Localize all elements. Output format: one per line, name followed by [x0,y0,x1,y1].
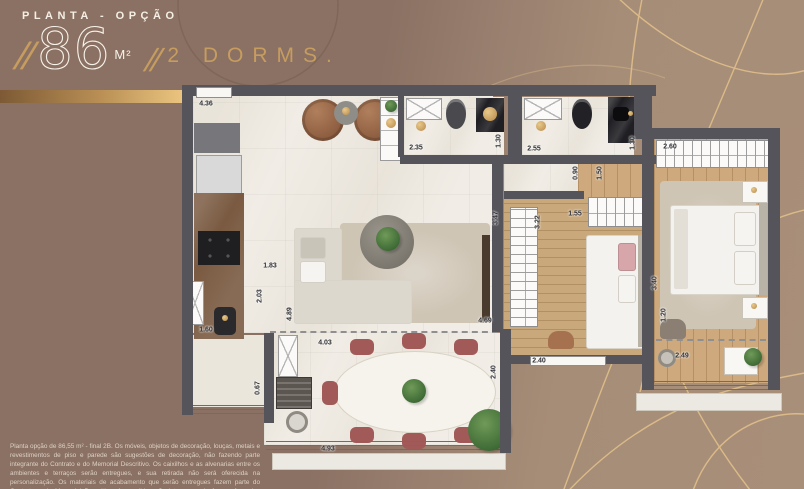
grill-icon [276,377,312,409]
decor-tray [342,107,350,115]
dimension-label: 1.60 [199,327,213,334]
railing [644,381,780,391]
floor-plan: 4.36 2.35 1.30 2.55 1.30 2.60 0.90 1.50 … [182,85,786,477]
dimension-label: 1.30 [630,136,637,150]
lamp-icon [751,303,757,309]
shower-icon [524,98,562,120]
shower-head-icon [536,121,546,131]
service-terrace-floor [193,335,264,407]
sliding-door [656,339,766,341]
pillow [618,275,636,303]
slash-icon: // [143,44,159,76]
toilet-icon [572,99,592,129]
dimension-label: 4.89 [287,307,294,321]
dining-chair [350,339,374,355]
toilet-icon [446,99,466,129]
bed-throw [674,209,688,289]
plant-icon [744,348,762,366]
dimension-label: 2.40 [491,365,498,379]
legal-disclaimer: Planta opção de 86,55 m² - final 2B. Os … [10,443,260,489]
dimension-label: 4.93 [321,446,335,453]
pillow [734,212,756,246]
faucet-icon [628,111,633,116]
dimension-label: 0.67 [255,381,262,395]
dimension-label: 0.90 [573,166,580,180]
sliding-door [270,331,498,333]
decor-bowl [386,118,396,128]
round-sink-icon [286,411,308,433]
pillow [618,243,636,271]
wardrobe [588,197,648,227]
wall [400,155,656,164]
kitchen-cabinet [194,123,240,153]
dining-chair [454,339,478,355]
armchair [548,331,574,349]
sofa-cushion [300,261,326,283]
wall [642,128,654,390]
area-headline: // 86 M² // 2 DORMS. [16,24,341,76]
entry-door [196,87,232,98]
dorms-label: 2 DORMS. [167,44,341,68]
wall [500,329,511,453]
dining-chair [402,333,426,349]
plant-icon [376,227,400,251]
wall [182,85,193,415]
wall [508,96,522,156]
plant-icon [385,100,397,112]
wall [642,128,780,139]
dimension-label: 1.50 [597,166,604,180]
shower-icon [406,98,442,120]
wall [264,333,274,423]
fridge-icon [196,155,242,195]
dimension-label: 4.69 [478,318,492,325]
headboard [759,203,767,295]
dimension-label: 1.55 [568,211,582,218]
dimension-label: 2.49 [675,353,689,360]
dimension-label: 3.22 [535,215,542,229]
cooktop-icon [198,231,240,265]
dimension-label: 2.60 [663,144,677,151]
wall [182,85,656,96]
sofa [294,280,412,324]
wall [768,128,780,390]
gold-accent-bar [0,90,182,103]
dimension-label: 1.20 [661,308,668,322]
dimension-label: 2.40 [532,358,546,365]
dimension-label: 1.83 [263,263,277,270]
shower-head-icon [416,121,426,131]
dimension-label: 4.36 [199,101,213,108]
area-unit: M² [114,47,131,62]
dimension-label: 3.47 [493,211,500,225]
railing [192,405,268,414]
open-door [278,335,298,377]
armchair [660,319,686,339]
plant-icon [402,379,426,403]
railing [266,441,504,451]
dimension-label: 4.03 [318,340,332,347]
slash-icon: // [13,38,33,76]
faucet-icon [222,315,228,321]
area-value: 86 [37,24,110,76]
balcony-ledge [636,393,782,411]
sofa-cushion [300,237,326,259]
wall [398,85,404,157]
kitchen-sink-icon [214,307,236,335]
washbasin-icon [613,107,629,121]
dimension-label: 2.55 [527,146,541,153]
corridor-floor [578,164,644,200]
pillow [734,251,756,285]
round-sink-icon [658,349,676,367]
wall [504,191,584,199]
dimension-label: 1.30 [496,134,503,148]
dimension-label: 2.35 [409,145,423,152]
page-background: PLANTA - OPÇÃO // 86 M² // 2 DORMS. Plan… [0,0,804,489]
terrace-ledge [272,453,506,470]
dimension-label: 2.03 [257,289,264,303]
washbasin-icon [483,107,497,121]
wall [492,160,503,332]
lamp-icon [751,187,757,193]
tv-console [482,235,490,321]
dining-chair [322,381,338,405]
dimension-label: 3.40 [652,276,659,290]
